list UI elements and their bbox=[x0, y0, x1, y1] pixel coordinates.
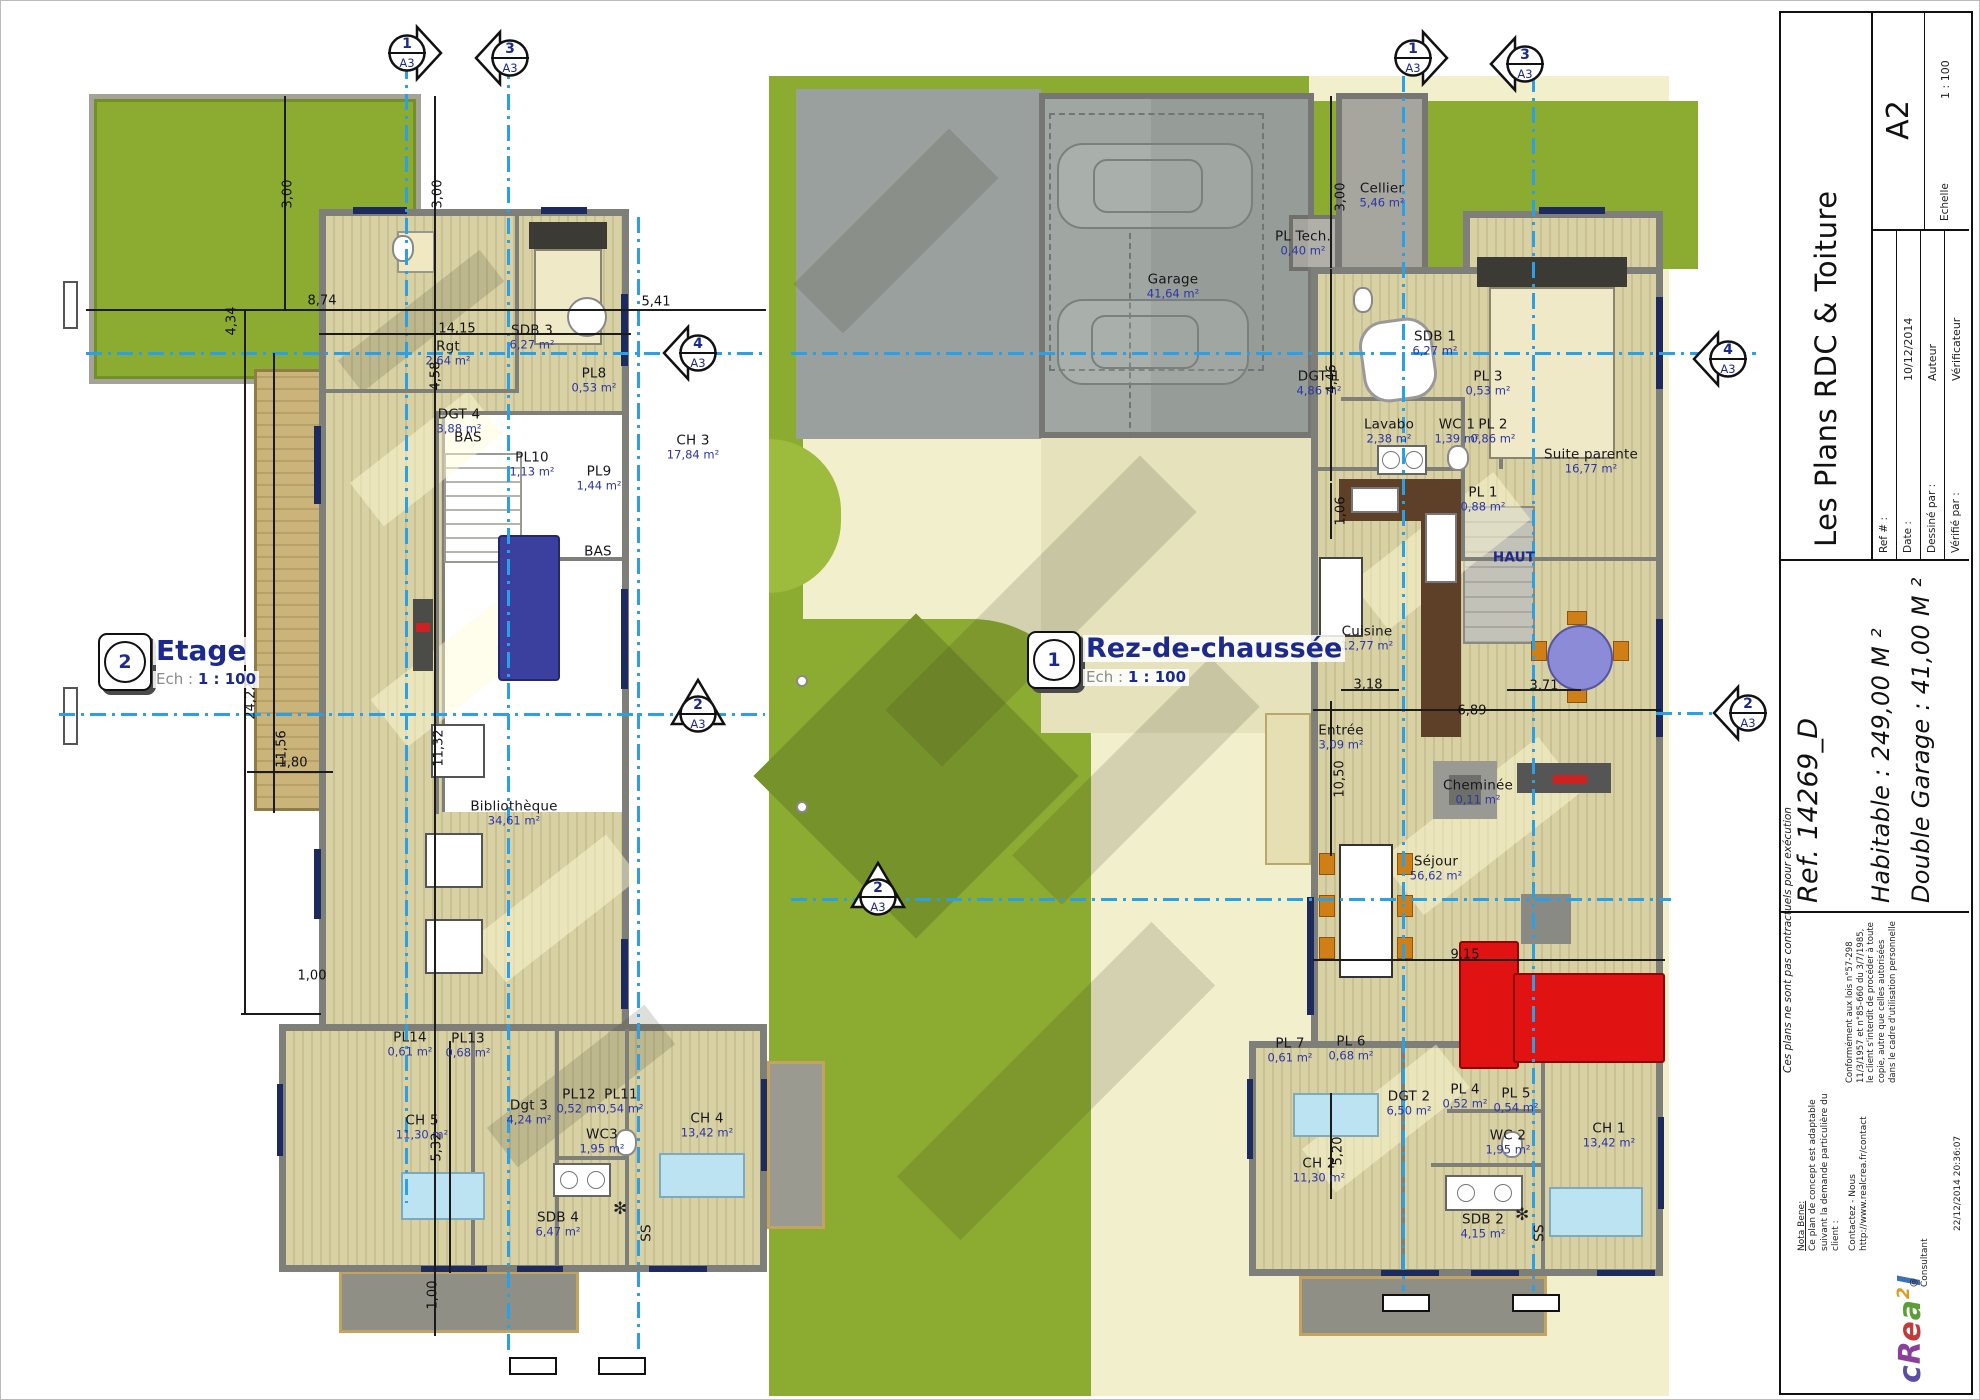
plan1-scale: Ech : 1 : 100 bbox=[153, 671, 259, 688]
room-label: PL 50,54 m² bbox=[1493, 1087, 1538, 1114]
chair bbox=[1319, 853, 1335, 875]
room-label: CH 113,42 m² bbox=[1583, 1122, 1635, 1149]
sink-sdb4 bbox=[553, 1163, 611, 1197]
svg-text:A3: A3 bbox=[1517, 67, 1532, 81]
chair bbox=[1567, 689, 1587, 703]
chair bbox=[1319, 937, 1335, 959]
room-label: SDB 24,15 m² bbox=[1460, 1213, 1505, 1240]
plan2-number: 1 bbox=[1033, 639, 1075, 681]
contact-line: Contactez - Nous http://www.realcrea.fr/… bbox=[1848, 1093, 1871, 1251]
grid-line-2 bbox=[59, 713, 765, 716]
ref-section: Ref. 14269_D Habitable : 249,00 M ² Doub… bbox=[1781, 559, 1969, 913]
room-label: CH 413,42 m² bbox=[681, 1112, 733, 1139]
room-label: PL 10,88 m² bbox=[1460, 486, 1505, 513]
garden-post bbox=[796, 675, 808, 687]
svg-text:2: 2 bbox=[693, 697, 703, 713]
section-marker: 2A3 bbox=[842, 861, 914, 933]
field-value: 10/12/2014 bbox=[1902, 318, 1915, 381]
dim-line bbox=[247, 771, 333, 773]
dining-table bbox=[1339, 844, 1393, 978]
section-marker: 2A3 bbox=[662, 678, 734, 750]
room-label: PL101,13 m² bbox=[509, 451, 554, 478]
svg-text:A3: A3 bbox=[399, 56, 414, 70]
sheet-title: Les Plans RDC & Toiture bbox=[1809, 190, 1843, 561]
dimension-label: 4,46 bbox=[1325, 365, 1340, 394]
room-label: BAS bbox=[584, 545, 612, 560]
room-label: PL 20,86 m² bbox=[1470, 418, 1515, 445]
dimension-label: 5,20 bbox=[1331, 1137, 1346, 1166]
room-label: DGT 26,50 m² bbox=[1386, 1090, 1431, 1117]
field-label: Vérifié par : bbox=[1950, 492, 1962, 553]
field-label: Date : bbox=[1902, 521, 1914, 553]
dimension-label: 3,71 bbox=[1530, 679, 1559, 694]
header-section: Les Plans RDC & Toiture Ref # : Date : 1… bbox=[1781, 13, 1969, 561]
toilet-sdb1 bbox=[1353, 287, 1373, 313]
notes-section: cRea2l @ Consultant Nota Bene: Ce plan d… bbox=[1781, 911, 1969, 1391]
room-label: PL 70,61 m² bbox=[1267, 1037, 1312, 1064]
timestamp: 22/12/2014 20:36:07 bbox=[1953, 1136, 1963, 1231]
dimension-label: 8,74 bbox=[308, 294, 337, 309]
plan1-number-badge: 2 bbox=[98, 633, 152, 691]
room-label: PL120,52 m² bbox=[556, 1088, 601, 1115]
logo-letter: c bbox=[1893, 1364, 1928, 1383]
dimension-label: 14,15 bbox=[438, 322, 475, 337]
scale-label: Echelle bbox=[1939, 183, 1951, 221]
grid-line-4 bbox=[791, 352, 1756, 355]
svg-text:3: 3 bbox=[505, 41, 515, 57]
grid-line bbox=[637, 217, 640, 1355]
dim-line bbox=[241, 1013, 321, 1015]
sheet-title-cell: Les Plans RDC & Toiture bbox=[1781, 13, 1873, 561]
toilet-sdb3 bbox=[392, 235, 414, 262]
svg-text:2: 2 bbox=[873, 880, 883, 896]
plan1-porch bbox=[63, 687, 78, 745]
logo-letter: e bbox=[1893, 1320, 1928, 1341]
toilet-wc1 bbox=[1447, 445, 1469, 471]
dimension-label: 1,06 bbox=[1334, 497, 1349, 526]
plan1-porch bbox=[63, 281, 78, 329]
room-label: PL140,61 m² bbox=[387, 1031, 432, 1058]
dim-line bbox=[1313, 709, 1661, 711]
fields-grid: Ref # : Date : 10/12/2014 Dessiné par : … bbox=[1873, 231, 1969, 561]
sink-sdb2 bbox=[1445, 1175, 1523, 1211]
room-label: Cheminée0,11 m² bbox=[1443, 779, 1513, 806]
dimension-label: 3,00 bbox=[431, 180, 446, 209]
section-marker: 1A3 bbox=[1377, 22, 1449, 94]
grid-end-marker bbox=[598, 1357, 646, 1375]
dimension-label: 5,41 bbox=[642, 295, 671, 310]
dimension-label: 9,15 bbox=[1451, 948, 1480, 963]
svg-text:3: 3 bbox=[1520, 47, 1530, 63]
dimension-label: 1,00 bbox=[426, 1281, 441, 1310]
tv-cabinet bbox=[413, 599, 433, 671]
room-label: SS bbox=[1533, 1224, 1548, 1242]
room-label: Lavabo2,38 m² bbox=[1364, 418, 1414, 445]
section-marker: 2A3 bbox=[1712, 677, 1784, 749]
plan1-bottom-deck bbox=[339, 1271, 579, 1333]
svg-text:4: 4 bbox=[1723, 342, 1733, 358]
svg-text:A3: A3 bbox=[1740, 716, 1755, 730]
title-block: Ces plans ne sont pas contractuels pour … bbox=[1779, 11, 1973, 1395]
room-label: Garage41,64 m² bbox=[1147, 273, 1199, 300]
room-label: WC 21,95 m² bbox=[1485, 1129, 1530, 1156]
title-block-rotated: Ces plans ne sont pas contractuels pour … bbox=[1781, 13, 1969, 1391]
garden-post bbox=[796, 801, 808, 813]
bed-ch2 bbox=[1293, 1093, 1379, 1137]
svg-text:A3: A3 bbox=[870, 900, 885, 914]
room-label: Bibliothèque34,61 m² bbox=[470, 800, 557, 827]
room-label: PL 30,53 m² bbox=[1465, 370, 1510, 397]
fan-icon: ✻ bbox=[1515, 1205, 1529, 1225]
field-value: Auteur bbox=[1926, 344, 1939, 381]
room-label: PL 40,52 m² bbox=[1442, 1083, 1487, 1110]
svg-text:A3: A3 bbox=[690, 356, 705, 370]
dimension-label: 1,80 bbox=[279, 756, 308, 771]
grid-end-marker bbox=[1512, 1294, 1560, 1312]
legal-text: Conformément aux lois n°57-298 11/3/1957… bbox=[1845, 921, 1898, 1083]
plan1-number: 2 bbox=[104, 641, 146, 683]
scale-zone: A2 Echelle 1 : 100 bbox=[1873, 13, 1969, 231]
chair bbox=[1567, 611, 1587, 625]
room-label: Cellier5,46 m² bbox=[1359, 182, 1404, 209]
dimension-label: 11,32 bbox=[432, 729, 447, 766]
dimension-label: 1,00 bbox=[298, 969, 327, 984]
field-label: Dessiné par : bbox=[1926, 484, 1938, 553]
room-label: PL91,44 m² bbox=[576, 465, 621, 492]
bed-ch3 bbox=[529, 222, 607, 249]
room-label: PL130,68 m² bbox=[445, 1032, 490, 1059]
room-label: PL Tech.0,40 m² bbox=[1275, 230, 1331, 257]
dimension-label: 3,18 bbox=[1354, 678, 1383, 693]
consultant-credit: @ Consultant bbox=[1909, 1227, 1932, 1287]
drawing-sheet: ✻ bbox=[0, 0, 1980, 1400]
plan2-title: Rez-de-chaussée bbox=[1083, 635, 1345, 662]
section-marker: 4A3 bbox=[1692, 323, 1764, 395]
svg-text:1: 1 bbox=[402, 36, 412, 52]
plan1-title: Etage bbox=[153, 637, 249, 665]
grid-end-marker bbox=[509, 1357, 557, 1375]
dimension-label: 4,34 bbox=[225, 307, 240, 336]
garage-line: Double Garage : 41,00 M ² bbox=[1907, 577, 1935, 903]
bed-ch4 bbox=[659, 1153, 745, 1198]
room-label: SS bbox=[640, 1224, 655, 1242]
svg-text:4: 4 bbox=[693, 336, 703, 352]
dimension-label: 4,58 bbox=[429, 362, 444, 391]
dimension-label: 3,00 bbox=[1334, 183, 1349, 212]
svg-text:1: 1 bbox=[1408, 41, 1418, 57]
room-label: BAS bbox=[454, 431, 482, 446]
room-label: SDB 16,27 m² bbox=[1412, 330, 1457, 357]
shower-sdb3 bbox=[567, 297, 607, 337]
plan2-scale: Ech : 1 : 100 bbox=[1083, 669, 1189, 686]
nota-bene-title: Nota Bene: bbox=[1797, 1093, 1808, 1251]
section-marker: 4A3 bbox=[662, 317, 734, 389]
car-cabin bbox=[1093, 159, 1203, 213]
grid-end-marker bbox=[1382, 1294, 1430, 1312]
dimension-label: 5,32 bbox=[430, 1133, 445, 1162]
stove bbox=[1425, 513, 1457, 583]
dimension-label: 3,00 bbox=[281, 180, 296, 209]
room-label: SDB 36,27 m² bbox=[509, 324, 554, 351]
kitchen-sink bbox=[1351, 487, 1399, 513]
section-marker: 3A3 bbox=[474, 22, 546, 94]
tv-red bbox=[416, 623, 430, 632]
fan-icon: ✻ bbox=[613, 1199, 627, 1219]
svg-text:A3: A3 bbox=[1720, 362, 1735, 376]
bed-ch5 bbox=[401, 1172, 485, 1220]
sheet-format-cell: A2 bbox=[1873, 11, 1925, 229]
room-label: PL80,53 m² bbox=[571, 367, 616, 394]
sofa-red bbox=[1513, 973, 1665, 1063]
room-label: SDB 46,47 m² bbox=[535, 1211, 580, 1238]
section-marker: 1A3 bbox=[371, 17, 443, 89]
field-label: Ref # : bbox=[1878, 517, 1890, 553]
bed-ch1 bbox=[1549, 1187, 1643, 1237]
habitable-line: Habitable : 249,00 M ² bbox=[1867, 628, 1895, 903]
grid-line-2 bbox=[791, 898, 1671, 901]
svg-text:A3: A3 bbox=[502, 61, 517, 75]
car-cabin bbox=[1091, 315, 1199, 369]
room-label: HAUT bbox=[1493, 551, 1535, 566]
dim-line bbox=[449, 1041, 451, 1273]
grid-line-3 bbox=[507, 63, 510, 1355]
room-label: PL 60,68 m² bbox=[1328, 1035, 1373, 1062]
plan2-number-badge: 1 bbox=[1027, 631, 1081, 689]
sheet-format: A2 bbox=[1881, 100, 1916, 140]
svg-text:2: 2 bbox=[1743, 696, 1753, 712]
tv-red bbox=[1553, 775, 1587, 784]
room-label: Entrée3,09 m² bbox=[1318, 724, 1363, 751]
svg-text:A3: A3 bbox=[690, 717, 705, 731]
crea-logo: cRea2l bbox=[1893, 1275, 1928, 1383]
chair bbox=[1613, 641, 1629, 661]
section-marker: 3A3 bbox=[1489, 28, 1561, 100]
room-label: Dgt 34,24 m² bbox=[506, 1099, 551, 1126]
dim-line bbox=[1330, 483, 1332, 539]
logo-letter: R bbox=[1893, 1342, 1928, 1365]
chair bbox=[1397, 937, 1413, 959]
nota-bene-body: Ce plan de concept est adaptable suivant… bbox=[1808, 1093, 1842, 1251]
room-label: Cuisine12,77 m² bbox=[1341, 625, 1393, 652]
logo-letter: 2 bbox=[1894, 1286, 1914, 1299]
svg-text:A3: A3 bbox=[1405, 61, 1420, 75]
nota-bene: Nota Bene: Ce plan de concept est adapta… bbox=[1797, 1093, 1871, 1251]
room-label: PL110,54 m² bbox=[598, 1088, 643, 1115]
dim-line bbox=[1313, 959, 1665, 961]
logo-letter: a bbox=[1893, 1299, 1928, 1320]
field-value: Vérificateur bbox=[1950, 318, 1963, 381]
room-label: CH 317,84 m² bbox=[667, 434, 719, 461]
suite-bed-head bbox=[1477, 257, 1627, 287]
dimension-label: 6,89 bbox=[1458, 704, 1487, 719]
ref-line: Ref. 14269_D bbox=[1793, 718, 1824, 903]
room-label: Suite parente16,77 m² bbox=[1544, 448, 1638, 475]
scale-value: 1 : 100 bbox=[1939, 60, 1952, 99]
plan1-balcony bbox=[767, 1061, 825, 1229]
plan2-entry-porch bbox=[1265, 713, 1311, 865]
room-label: WC31,95 m² bbox=[579, 1128, 624, 1155]
room-label: Séjour56,62 m² bbox=[1410, 855, 1462, 882]
dimension-label: 10,50 bbox=[1333, 760, 1348, 797]
coffee-table bbox=[1521, 894, 1571, 944]
